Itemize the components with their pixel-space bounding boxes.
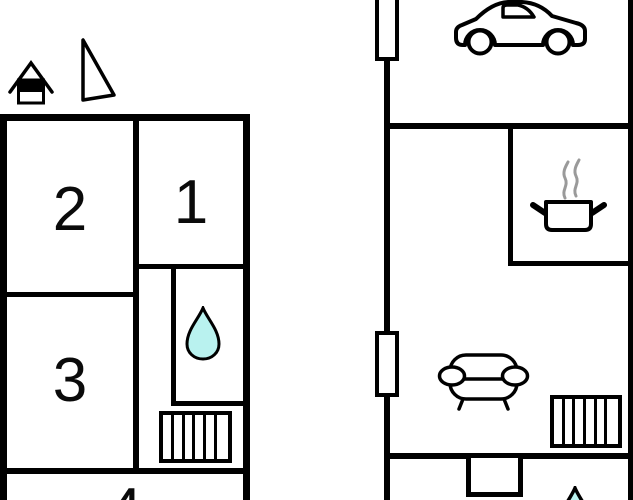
water-drop-icon	[185, 306, 221, 361]
wall-right-west	[384, 0, 390, 500]
wall-bathroom-bottom	[171, 401, 243, 406]
north-arrow-icon	[78, 35, 120, 105]
stairs-icon	[550, 395, 622, 448]
wall-room2-bottom	[0, 292, 139, 297]
window-middle	[375, 331, 399, 397]
wall-left-west	[0, 114, 7, 500]
wall-right-east	[628, 0, 633, 500]
floorplan: 2 1 3 4	[0, 0, 633, 500]
shower-box	[466, 453, 523, 497]
car-icon	[452, 0, 590, 56]
wall-room1-bottom	[133, 264, 250, 269]
sofa-icon	[436, 351, 530, 411]
wall-kitchen-left	[508, 123, 513, 266]
room-4-label: 4	[0, 480, 250, 500]
window-top	[375, 0, 399, 61]
cooking-pot-icon	[528, 156, 608, 236]
wall-left-east	[243, 114, 250, 500]
room-1-label: 1	[139, 172, 243, 234]
wall-left-top	[0, 114, 250, 121]
room-3-label: 3	[7, 350, 133, 412]
room-2-label: 2	[7, 179, 133, 241]
wall-kitchen-bottom	[508, 261, 633, 266]
wall-left-bottom	[0, 468, 250, 474]
house-icon	[8, 58, 58, 108]
water-drop-icon	[553, 486, 597, 500]
wall-bathroom-left	[171, 264, 176, 406]
stairs-icon	[159, 411, 232, 463]
